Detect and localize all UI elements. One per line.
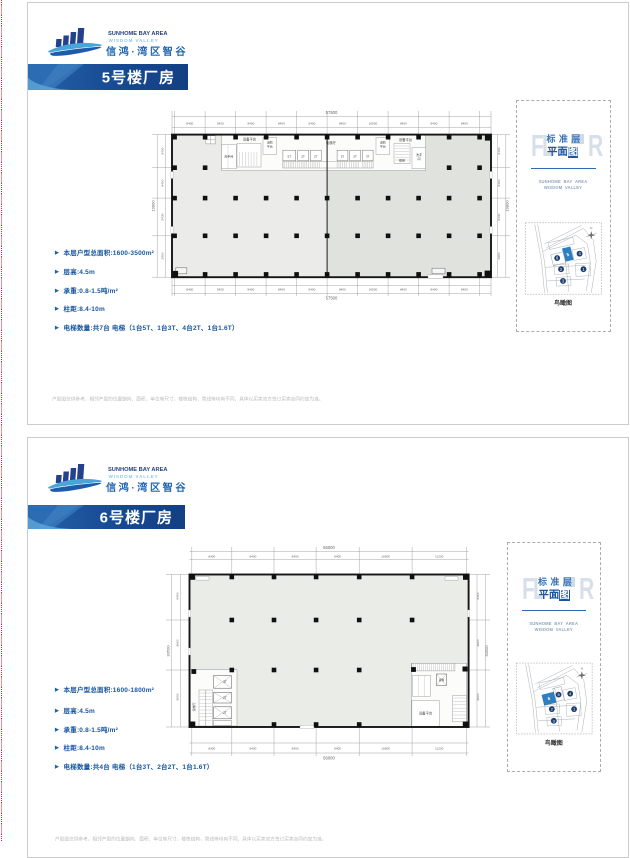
svg-text:30500: 30500 xyxy=(165,645,170,657)
svg-text:19800: 19800 xyxy=(505,200,510,212)
svg-text:设备平台: 设备平台 xyxy=(419,711,433,716)
svg-text:洗手间: 洗手间 xyxy=(224,154,233,159)
svg-text:2T: 2T xyxy=(223,711,227,715)
svg-text:56000: 56000 xyxy=(323,756,335,761)
svg-text:11230: 11230 xyxy=(435,555,444,559)
svg-text:楼梯: 楼梯 xyxy=(399,157,405,162)
svg-text:57500: 57500 xyxy=(326,296,338,301)
svg-text:2T: 2T xyxy=(353,154,357,158)
svg-text:2900: 2900 xyxy=(497,252,501,259)
svg-text:8400: 8400 xyxy=(249,747,256,751)
svg-text:10500: 10500 xyxy=(381,747,390,751)
svg-text:2T: 2T xyxy=(314,154,318,158)
svg-text:8400: 8400 xyxy=(186,288,193,292)
svg-text:9600: 9600 xyxy=(176,639,180,646)
svg-text:5430: 5430 xyxy=(160,213,164,220)
svg-text:10500: 10500 xyxy=(369,122,378,126)
svg-text:30500: 30500 xyxy=(484,645,489,657)
svg-text:SUNHOME BAY AREA: SUNHOME BAY AREA xyxy=(108,467,168,473)
svg-text:6号楼厂房: 6号楼厂房 xyxy=(100,509,173,527)
svg-text:56000: 56000 xyxy=(323,545,335,550)
svg-text:8400: 8400 xyxy=(476,592,480,599)
svg-text:平台: 平台 xyxy=(380,144,386,149)
svg-text:8400: 8400 xyxy=(461,288,468,292)
svg-text:8400: 8400 xyxy=(334,747,341,751)
svg-text:5430: 5430 xyxy=(217,288,224,292)
svg-text:信鸿·湾区智谷: 信鸿·湾区智谷 xyxy=(106,45,188,58)
svg-text:平台: 平台 xyxy=(267,144,273,149)
svg-text:SUNHOME BAY AREA: SUNHOME BAY AREA xyxy=(108,31,168,37)
svg-text:3T: 3T xyxy=(223,680,227,684)
svg-text:设备平台: 设备平台 xyxy=(243,137,257,142)
svg-text:WISDOM VALLEY: WISDOM VALLEY xyxy=(109,474,159,479)
svg-text:9600: 9600 xyxy=(476,693,480,700)
svg-text:8400: 8400 xyxy=(430,122,437,126)
svg-text:5430: 5430 xyxy=(217,122,224,126)
svg-text:8400: 8400 xyxy=(247,288,254,292)
svg-text:9600: 9600 xyxy=(476,639,480,646)
svg-text:2T: 2T xyxy=(341,154,345,158)
svg-text:8400: 8400 xyxy=(292,555,299,559)
svg-text:8400: 8400 xyxy=(334,555,341,559)
svg-text:5430: 5430 xyxy=(160,147,164,154)
svg-text:9600: 9600 xyxy=(176,693,180,700)
svg-text:8400: 8400 xyxy=(430,288,437,292)
svg-text:间: 间 xyxy=(417,156,420,161)
svg-text:8400: 8400 xyxy=(400,288,407,292)
svg-text:N: N xyxy=(590,226,592,230)
svg-text:5430: 5430 xyxy=(497,213,501,220)
svg-text:5430: 5430 xyxy=(497,147,501,154)
svg-text:设备平台: 设备平台 xyxy=(399,137,413,142)
svg-text:5400: 5400 xyxy=(308,288,315,292)
svg-text:10500: 10500 xyxy=(369,288,378,292)
svg-text:8400: 8400 xyxy=(160,179,164,186)
svg-text:8400: 8400 xyxy=(208,555,215,559)
svg-text:8400: 8400 xyxy=(339,288,346,292)
svg-text:8400: 8400 xyxy=(497,179,501,186)
svg-text:10500: 10500 xyxy=(381,555,390,559)
svg-text:2T: 2T xyxy=(301,154,305,158)
svg-text:货梯: 货梯 xyxy=(439,678,445,682)
svg-text:5T: 5T xyxy=(288,154,292,158)
svg-text:3T: 3T xyxy=(366,154,370,158)
svg-text:货梯厅: 货梯厅 xyxy=(191,702,196,711)
svg-text:2T: 2T xyxy=(223,696,227,700)
svg-text:8400: 8400 xyxy=(208,747,215,751)
svg-text:8400: 8400 xyxy=(278,288,285,292)
svg-text:8400: 8400 xyxy=(400,122,407,126)
svg-text:N: N xyxy=(581,666,583,670)
svg-text:8400: 8400 xyxy=(176,592,180,599)
svg-text:WISDOM VALLEY: WISDOM VALLEY xyxy=(109,38,159,43)
svg-text:8400: 8400 xyxy=(461,122,468,126)
svg-text:11230: 11230 xyxy=(435,747,444,751)
svg-text:5400: 5400 xyxy=(308,122,315,126)
svg-text:8400: 8400 xyxy=(247,122,254,126)
svg-text:8400: 8400 xyxy=(339,122,346,126)
svg-text:8400: 8400 xyxy=(186,122,193,126)
svg-text:19800: 19800 xyxy=(151,200,156,212)
svg-text:8400: 8400 xyxy=(292,747,299,751)
svg-text:信鸿·湾区智谷: 信鸿·湾区智谷 xyxy=(106,481,188,494)
svg-text:2900: 2900 xyxy=(160,252,164,259)
svg-text:8400: 8400 xyxy=(249,555,256,559)
svg-text:8400: 8400 xyxy=(278,122,285,126)
svg-text:57500: 57500 xyxy=(326,110,338,115)
svg-text:5号楼厂房: 5号楼厂房 xyxy=(102,69,175,87)
